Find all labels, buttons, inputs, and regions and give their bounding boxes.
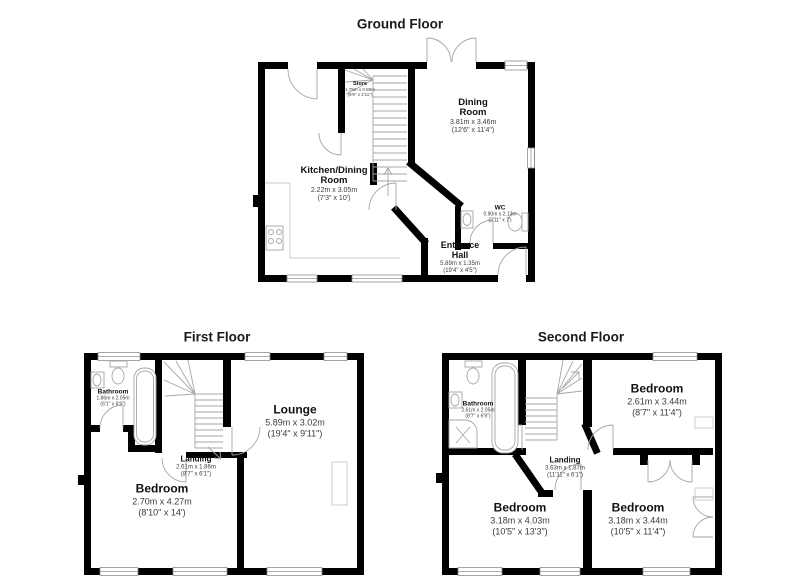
floorplan-page: Ground Floor — [0, 0, 800, 582]
floor-title-first: First Floor — [184, 330, 251, 345]
room-label-kitchen-dining: Kitchen/Dining Room 2.22m x 3.05m (7'3" … — [294, 166, 374, 204]
room-label-ff-landing: Landing 2.61m x 1.86m (8'7" x 6'1") — [176, 455, 216, 478]
ground-floor-plan — [250, 36, 540, 286]
bathtub-icon — [492, 363, 518, 453]
room-label-ff-bedroom: Bedroom 2.70m x 4.27m (8'10" x 14') — [132, 482, 192, 517]
room-label-dining-room: Dining Room 3.81m x 3.46m (12'6" x 11'4"… — [450, 98, 496, 136]
sink-icon — [91, 372, 104, 388]
walls — [78, 353, 364, 575]
room-label-lounge: Lounge 5.89m x 3.02m (19'4" x 9'11") — [265, 403, 325, 438]
toilet-icon — [110, 361, 127, 384]
sink-icon — [449, 392, 462, 408]
room-label-ff-bathroom: Bathroom 1.86m x 2.05m (6'1" x 6'9") — [96, 388, 129, 407]
shower-icon — [449, 420, 477, 448]
stove-icon — [266, 226, 283, 250]
floor-title-ground: Ground Floor — [357, 17, 443, 32]
door-swing-icons — [288, 38, 526, 275]
room-label-sf-landing: Landing 3.63m x 1.87m (11'11" x 6'1") — [545, 456, 585, 479]
toilet-icon — [465, 361, 482, 384]
room-label-sf-bathroom: Bathroom 2.61m x 2.05m (8'7" x 6'9") — [461, 400, 494, 419]
chimney-breast — [332, 462, 347, 505]
room-label-sf-bedroom-top: Bedroom 2.61m x 3.44m (8'7" x 11'4") — [627, 382, 687, 417]
floor-title-second: Second Floor — [538, 330, 624, 345]
bathtub-icon — [134, 368, 156, 445]
room-label-sf-bedroom-left: Bedroom 3.18m x 4.03m (10'5" x 13'3") — [490, 501, 550, 536]
room-label-entrance-hall: Entrance Hall 5.89m x 1.35m (19'4" x 4'5… — [438, 241, 482, 275]
sink-icon — [461, 211, 473, 228]
room-label-store: Store 1.75m x 0.89m (5'9" x 2'11") — [345, 81, 375, 97]
first-floor-plan — [78, 348, 370, 580]
stairs-icon — [525, 360, 582, 440]
stairs-icon — [164, 360, 223, 459]
room-label-sf-bedroom-right: Bedroom 3.18m x 3.44m (10'5" x 11'4") — [608, 501, 668, 536]
room-label-wc: WC 0.90m x 2.13m (2'11" x 7') — [483, 204, 516, 223]
